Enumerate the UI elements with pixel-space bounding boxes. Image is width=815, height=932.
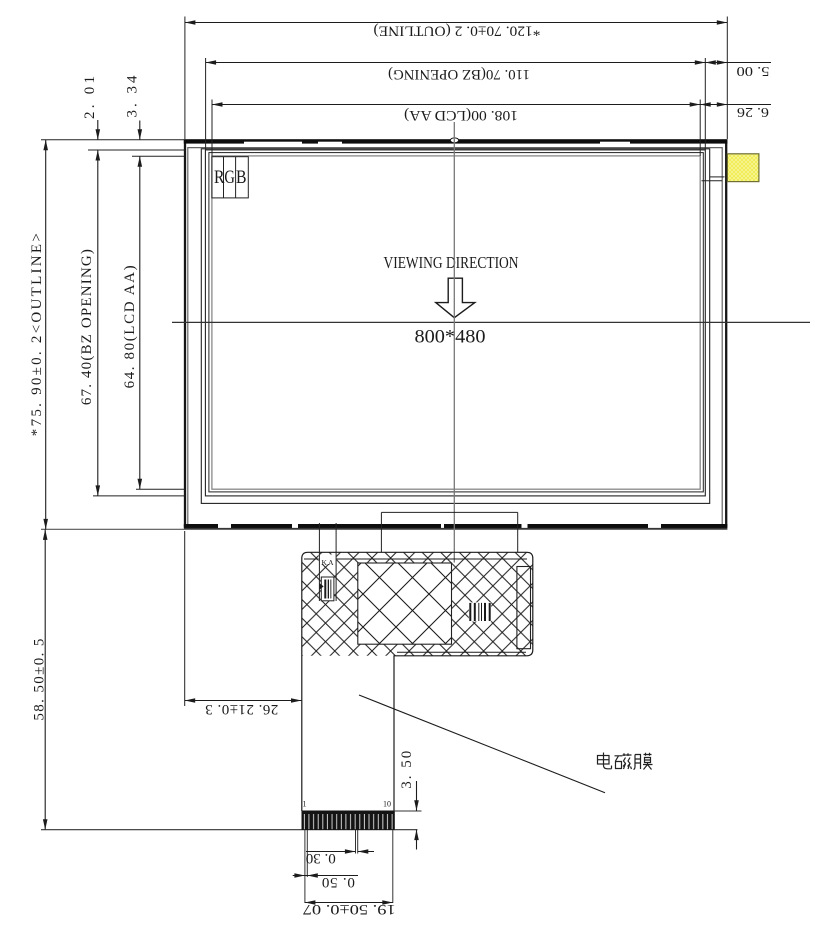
svg-text:110. 70(BZ OPENING): 110. 70(BZ OPENING) (388, 66, 530, 82)
svg-text:*75. 90±0. 2<OUTLINE>: *75. 90±0. 2<OUTLINE> (29, 233, 45, 436)
svg-text:1: 1 (303, 799, 307, 809)
svg-text:0. 50: 0. 50 (322, 874, 355, 890)
svg-text:*120. 70±0. 2 (OUTLINE): *120. 70±0. 2 (OUTLINE) (373, 23, 540, 39)
svg-text:5. 00: 5. 00 (737, 63, 770, 78)
svg-text:0. 30: 0. 30 (306, 850, 336, 866)
svg-text:3. 50: 3. 50 (399, 751, 415, 789)
svg-text:3. 34: 3. 34 (125, 75, 141, 118)
svg-text:B: B (236, 167, 247, 188)
svg-text:19. 50±0. 07: 19. 50±0. 07 (302, 901, 396, 917)
svg-text:2. 01: 2. 01 (82, 76, 98, 119)
svg-text:10: 10 (383, 799, 391, 809)
svg-text:26. 21±0. 3: 26. 21±0. 3 (205, 701, 278, 717)
svg-text:800*480: 800*480 (415, 328, 486, 348)
svg-text:R: R (214, 167, 225, 188)
svg-text:VIEWING DIRECTION: VIEWING DIRECTION (384, 253, 519, 272)
svg-text:64. 80(LCD AA): 64. 80(LCD AA) (122, 265, 138, 388)
svg-text:58. 50±0. 5: 58. 50±0. 5 (31, 639, 47, 721)
svg-text:6. 26: 6. 26 (737, 104, 769, 119)
svg-text:G: G (224, 167, 235, 188)
svg-text:67. 40(BZ OPENING): 67. 40(BZ OPENING) (79, 249, 95, 405)
svg-text:K A: K A (322, 558, 335, 567)
svg-text:108. 00(LCD AA): 108. 00(LCD AA) (404, 107, 518, 123)
